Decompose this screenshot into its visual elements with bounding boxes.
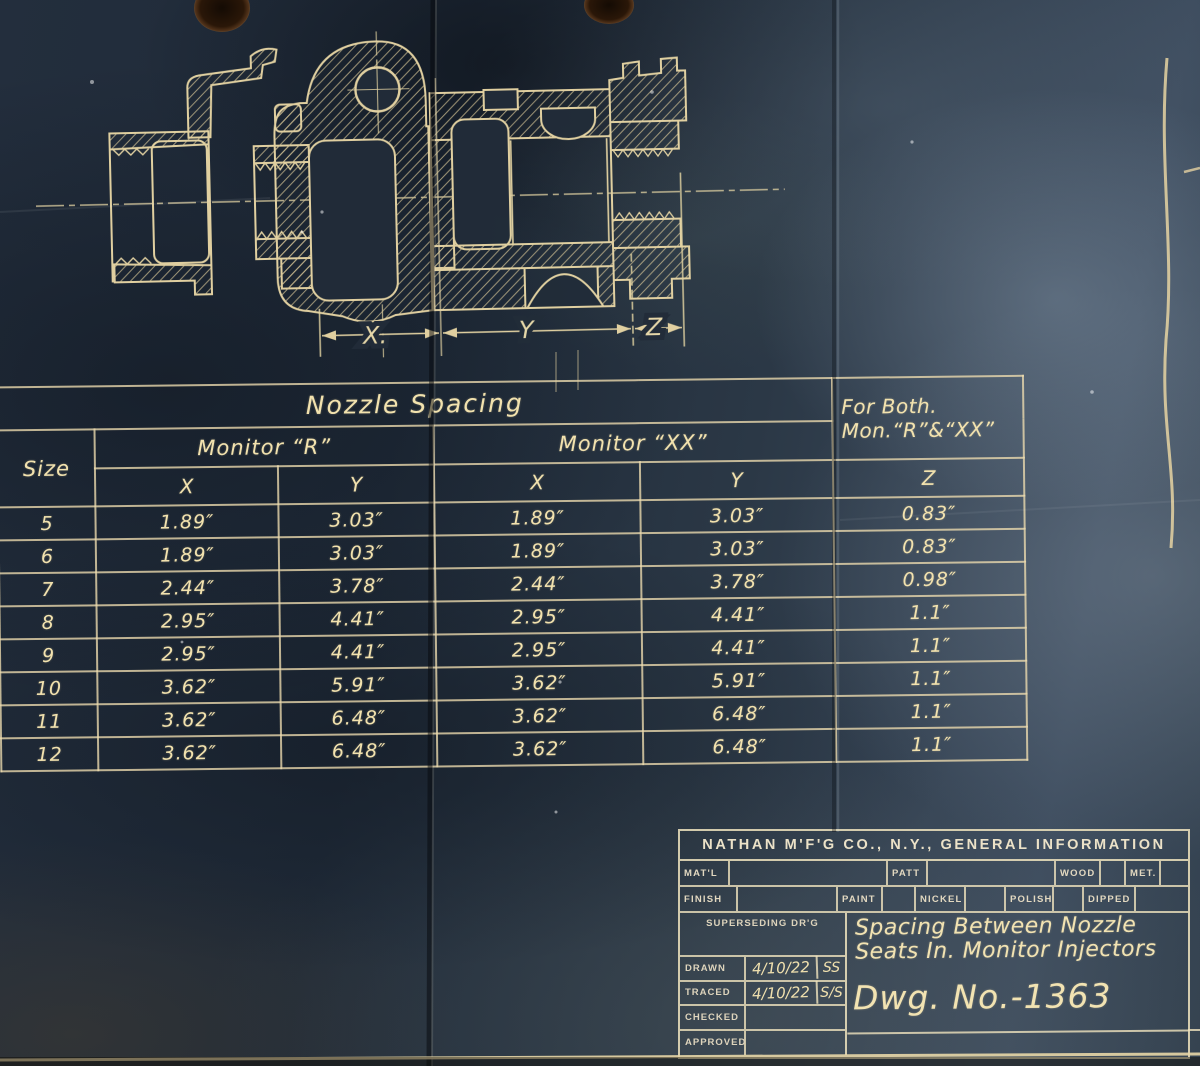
checked-label: CHECKED: [680, 1006, 746, 1029]
paint-label: PAINT: [838, 887, 883, 911]
traced-row: TRACED 4/10/22 S/S: [680, 982, 845, 1007]
patt-value: [928, 861, 1056, 885]
monitor-xx-x-cell: 1.89″: [435, 533, 641, 568]
col-header-z: Z: [833, 458, 1024, 498]
col-header-xxx: X: [434, 462, 640, 502]
mid-union: [254, 145, 312, 289]
size-cell: 8: [0, 605, 97, 639]
monitor-xx-y-cell: 4.41″: [642, 630, 835, 665]
drawing-number-underline-extension: [1188, 1029, 1200, 1031]
size-cell: 11: [1, 704, 98, 738]
size-cell: 10: [0, 671, 97, 705]
monitor-r-x-cell: 2.95″: [96, 603, 279, 638]
for-both-line2: Mon.“R”&“XX”: [841, 417, 1022, 443]
drawn-label: DRAWN: [680, 957, 746, 980]
traced-label: TRACED: [680, 982, 746, 1005]
bottom-arch: [527, 273, 604, 308]
monitor-r-y-cell: 3.78″: [279, 568, 435, 603]
left-coupling: [109, 131, 212, 296]
size-cell: 5: [0, 506, 96, 540]
dimension-lines: [314, 73, 684, 359]
met-label: MET.: [1126, 861, 1161, 885]
for-both-cell: For Both. Mon.“R”&“XX”: [832, 376, 1024, 460]
nozzle-spacing-table: Nozzle Spacing For Both. Mon.“R”&“XX” Si…: [0, 375, 1028, 773]
monitor-xx-y-cell: 3.03″: [641, 531, 834, 566]
monitor-xx-header: Monitor “XX”: [433, 421, 832, 465]
material-row: MAT'L PATT WOOD MET.: [680, 861, 1188, 887]
size-cell: 6: [0, 539, 96, 573]
monitor-r-x-cell: 2.95″: [97, 636, 280, 671]
finish-value: [738, 887, 838, 911]
drawing-title-area: Spacing Between Nozzle Seats In. Monitor…: [847, 913, 1188, 1055]
end-cap: [609, 57, 690, 299]
size-cell: 12: [1, 737, 98, 771]
z-cell: 1.1″: [835, 661, 1026, 696]
centerline-vertical: [376, 31, 383, 357]
col-header-ry: Y: [278, 464, 434, 504]
table-title-row: Nozzle Spacing For Both. Mon.“R”&“XX”: [0, 376, 1023, 431]
finish-row: FINISH PAINT NICKEL POLISH DIPPED: [680, 887, 1188, 913]
signature-column: SUPERSEDING DR'G DRAWN 4/10/22 SS TRACED…: [680, 913, 847, 1055]
monitor-r-y-cell: 4.41″: [279, 601, 435, 636]
monitor-r-x-cell: 1.89″: [95, 504, 278, 539]
monitor-r-y-cell: 6.48″: [281, 700, 437, 735]
col-header-xxy: Y: [640, 460, 833, 500]
z-cell: 1.1″: [835, 628, 1026, 663]
monitor-r-y-cell: 3.03″: [278, 502, 434, 537]
monitor-xx-x-cell: 2.44″: [435, 566, 641, 601]
drawn-row: DRAWN 4/10/22 SS: [680, 957, 845, 982]
monitor-xx-x-cell: 1.89″: [434, 500, 640, 535]
traced-initials: S/S: [818, 982, 845, 1005]
monitor-xx-x-cell: 2.95″: [435, 599, 641, 634]
monitor-r-header: Monitor “R”: [94, 425, 433, 468]
centerline-horizontal: [36, 189, 785, 206]
col-header-rx: X: [95, 466, 278, 506]
monitor-r-x-cell: 2.44″: [96, 570, 279, 605]
dim-y-label: Y: [519, 316, 537, 344]
approved-row: APPROVED: [680, 1031, 845, 1055]
wood-label: WOOD: [1056, 861, 1101, 885]
right-edge-tick: [1184, 168, 1200, 172]
monitor-r-y-cell: 6.48″: [281, 733, 437, 768]
size-header: Size: [0, 429, 95, 507]
company-name: NATHAN M'F'G CO., N.Y., GENERAL INFORMAT…: [680, 831, 1188, 861]
met-value: [1161, 861, 1188, 885]
size-cell: 9: [0, 638, 97, 672]
monitor-r-y-cell: 3.03″: [279, 535, 435, 570]
monitor-xx-y-cell: 6.48″: [643, 729, 836, 764]
bolt-hole: [355, 67, 400, 112]
for-both-line1: For Both.: [841, 393, 1022, 419]
monitor-r-y-cell: 4.41″: [280, 634, 436, 669]
right-cavity: [451, 118, 511, 249]
matl-value: [730, 861, 888, 885]
monitor-xx-y-cell: 3.78″: [641, 564, 834, 599]
dipped-label: DIPPED: [1084, 887, 1136, 911]
traced-date: 4/10/22: [746, 980, 819, 1005]
central-body: [272, 40, 432, 323]
title-block-main: SUPERSEDING DR'G DRAWN 4/10/22 SS TRACED…: [680, 913, 1188, 1055]
polish-label: POLISH: [1006, 887, 1054, 911]
drawn-date: 4/10/22: [746, 956, 819, 981]
drawing-title: Spacing Between Nozzle Seats In. Monitor…: [847, 911, 1188, 963]
patt-label: PATT: [888, 861, 928, 885]
injector-cross-section-drawing: X. Y Z: [24, 0, 802, 387]
right-body: [429, 87, 614, 310]
table-body: Nozzle Spacing For Both. Mon.“R”&“XX” Si…: [0, 376, 1027, 772]
monitor-xx-y-cell: 5.91″: [642, 663, 835, 698]
dipped-value: [1136, 887, 1188, 911]
monitor-r-x-cell: 3.62″: [98, 702, 281, 737]
z-cell: 0.83″: [833, 496, 1024, 531]
monitor-r-y-cell: 5.91″: [280, 667, 436, 702]
top-bracket: [186, 49, 278, 138]
monitor-xx-x-cell: 3.62″: [437, 698, 643, 733]
z-cell: 1.1″: [836, 727, 1027, 762]
checked-value: [746, 1006, 845, 1029]
drawn-initials: SS: [818, 957, 845, 980]
superseding-cell: SUPERSEDING DR'G: [680, 913, 845, 957]
monitor-xx-x-cell: 2.95″: [436, 632, 642, 667]
punch-hole-left: [194, 0, 250, 32]
nickel-value: [966, 887, 1006, 911]
polish-value: [1054, 887, 1084, 911]
title-block: NATHAN M'F'G CO., N.Y., GENERAL INFORMAT…: [678, 829, 1190, 1059]
monitor-r-x-cell: 3.62″: [97, 669, 280, 704]
dim-z-label: Z: [645, 313, 664, 341]
monitor-r-x-cell: 3.62″: [98, 735, 281, 770]
body-cavity: [309, 139, 399, 301]
dimension-labels: X. Y Z: [361, 313, 664, 350]
approved-value: [746, 1031, 845, 1055]
monitor-r-x-cell: 1.89″: [96, 537, 279, 572]
punch-hole-right: [584, 0, 634, 24]
monitor-xx-y-cell: 4.41″: [641, 597, 834, 632]
wood-value: [1101, 861, 1126, 885]
checked-row: CHECKED: [680, 1006, 845, 1031]
approved-label: APPROVED: [680, 1031, 746, 1055]
monitor-xx-x-cell: 3.62″: [437, 731, 643, 766]
z-cell: 1.1″: [835, 595, 1026, 630]
dim-x-label: X.: [361, 321, 388, 350]
monitor-xx-x-cell: 3.62″: [436, 665, 642, 700]
nickel-label: NICKEL: [916, 887, 966, 911]
z-cell: 0.83″: [834, 529, 1025, 564]
paint-value: [883, 887, 916, 911]
z-cell: 1.1″: [836, 694, 1027, 729]
finish-label: FINISH: [680, 887, 738, 911]
z-cell: 0.98″: [834, 562, 1025, 597]
matl-label: MAT'L: [680, 861, 730, 885]
blueprint-page: X. Y Z Nozzle Spacing For Both. Mon.“R”&…: [0, 0, 1200, 1066]
drawing-number: Dwg. No.-1363: [847, 960, 1189, 1035]
monitor-xx-y-cell: 6.48″: [643, 696, 836, 731]
tear-line-right: [1164, 58, 1172, 548]
monitor-xx-y-cell: 3.03″: [640, 498, 833, 533]
size-cell: 7: [0, 572, 96, 606]
